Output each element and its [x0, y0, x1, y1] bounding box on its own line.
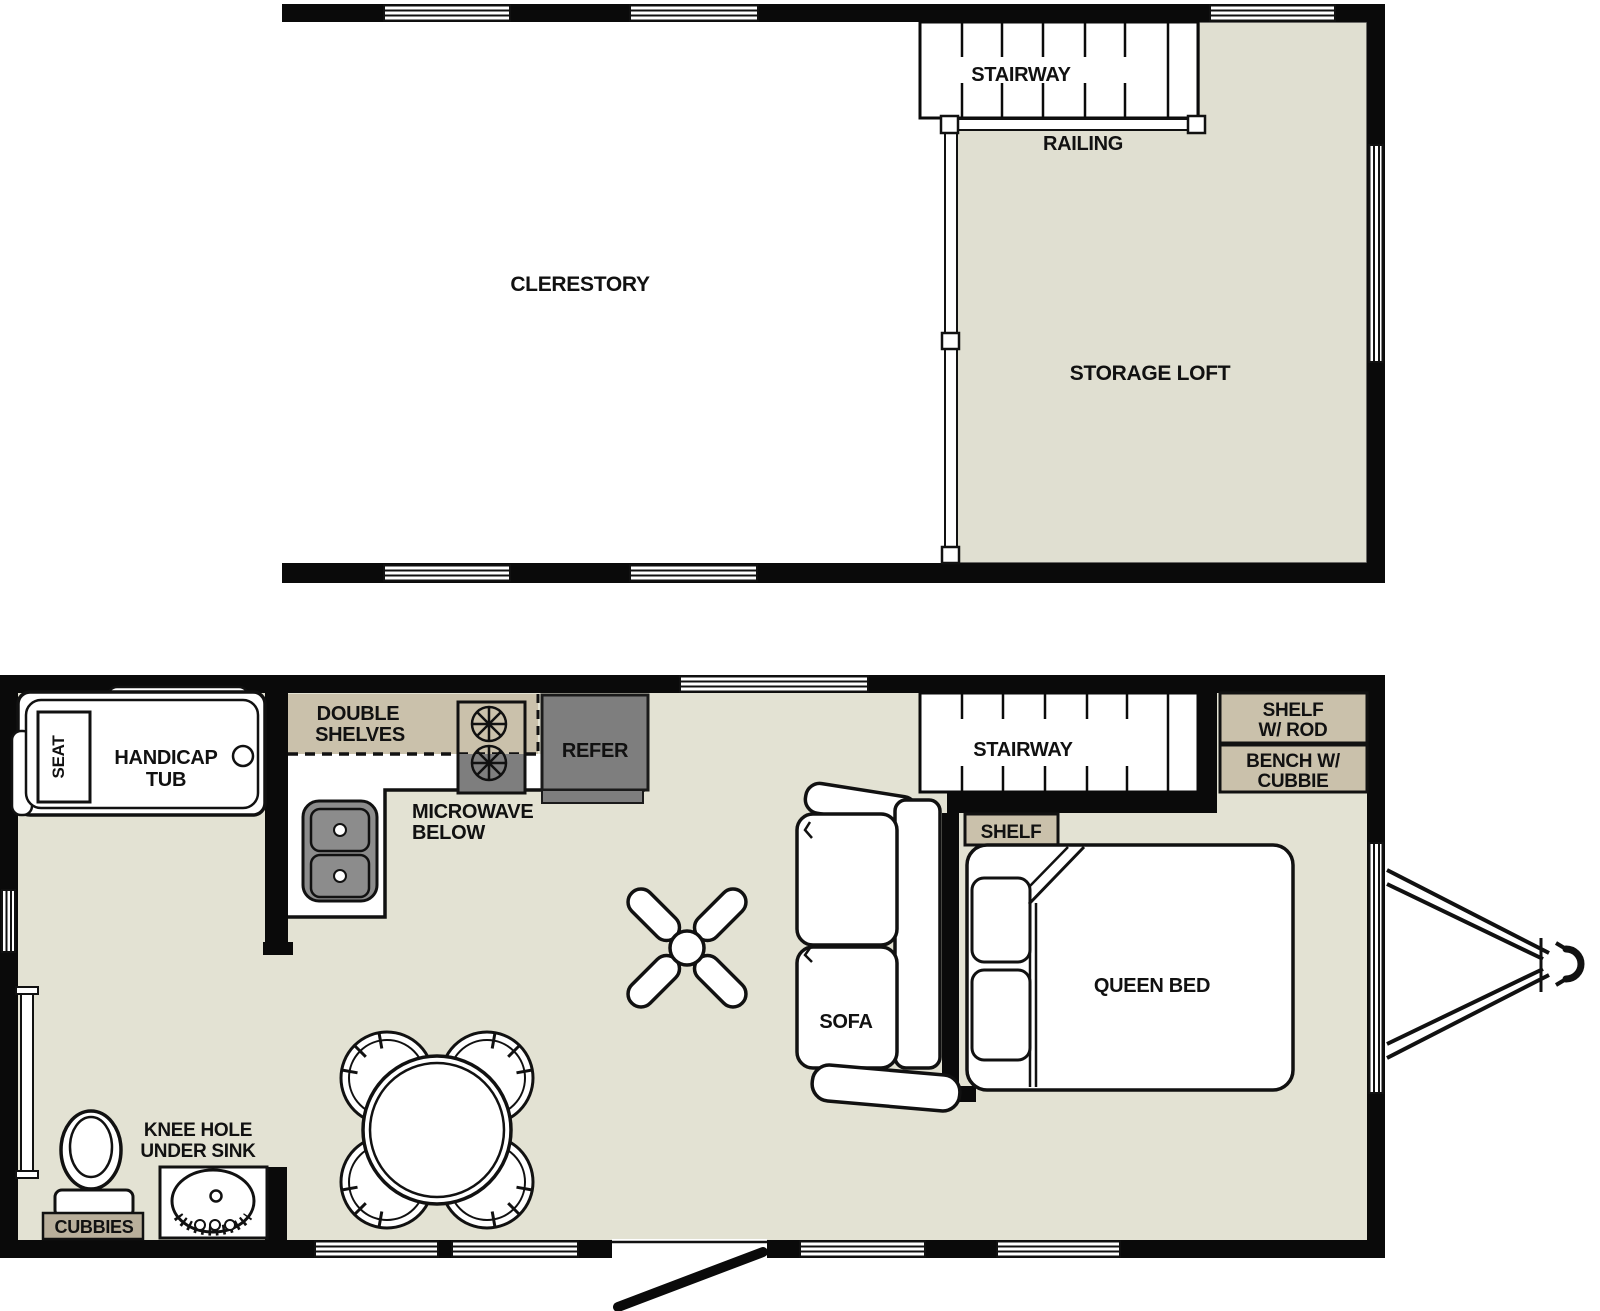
shelf-w-rod-label-2: W/ ROD: [1259, 720, 1328, 741]
main-window-right: [1370, 843, 1383, 1093]
burner: [472, 707, 506, 741]
tub-label-1: HANDICAP: [114, 747, 217, 769]
sofa-cushion-1: [797, 814, 897, 945]
cubbies-label: CUBBIES: [55, 1217, 134, 1237]
sofa-backrest: [895, 800, 940, 1068]
main-window-bottom-3: [800, 1242, 925, 1257]
upper-window-bottom-1: [384, 566, 510, 581]
upper-stairway-label: STAIRWAY: [971, 64, 1071, 86]
pillow: [972, 878, 1030, 962]
seat-label: SEAT: [49, 735, 68, 779]
pillow: [972, 970, 1030, 1060]
cubbies: CUBBIES: [43, 1213, 143, 1239]
main-level: SEAT HANDICAP TUB CUBBIES KNEE: [0, 675, 1581, 1307]
bed-shelf: SHELF: [965, 814, 1058, 845]
floorplan-page: STAIRWAY RAILING CLERESTORY STORAGE LOFT: [0, 0, 1600, 1311]
bed-shelf-label: SHELF: [981, 822, 1042, 843]
main-window-left: [2, 890, 15, 952]
bath-wall-tab: [263, 942, 293, 955]
main-window-bottom-4: [997, 1242, 1120, 1257]
railing-post: [942, 333, 959, 349]
upper-window-top-3: [1210, 6, 1335, 21]
burner: [472, 746, 506, 780]
upper-window-top-1: [384, 6, 510, 21]
bench-label-1: BENCH W/: [1246, 751, 1341, 772]
clerestory-label: CLERESTORY: [510, 273, 650, 296]
trailer-tongue: [1387, 870, 1581, 1058]
upper-window-bottom-2: [630, 566, 757, 581]
bathroom-sink: [160, 1167, 267, 1238]
refer-label: REFER: [562, 740, 629, 762]
bath-wall-upper: [265, 693, 288, 942]
entry-door: [612, 1239, 767, 1307]
hitch-coupler: [1566, 949, 1581, 979]
bench-w-cubbie: BENCH W/ CUBBIE: [1220, 745, 1367, 792]
double-shelves-label-2: SHELVES: [315, 724, 405, 746]
main-stairway-label: STAIRWAY: [973, 739, 1073, 761]
microwave-label-2: BELOW: [412, 822, 485, 844]
upper-level: STAIRWAY RAILING CLERESTORY STORAGE LOFT: [282, 4, 1385, 583]
refrigerator: REFER: [542, 695, 648, 803]
main-window-bottom-2: [452, 1242, 578, 1257]
sofa: SOFA: [797, 781, 961, 1112]
double-shelves-label-1: DOUBLE: [317, 703, 400, 725]
knee-hole-label-1: KNEE HOLE: [144, 1120, 252, 1141]
main-window-top: [680, 677, 868, 692]
bedroom-wall: [942, 813, 959, 1090]
microwave-label-1: MICROWAVE: [412, 801, 533, 823]
dinette-table-inner: [370, 1063, 504, 1197]
sofa-label: SOFA: [819, 1011, 872, 1033]
tub-label-2: TUB: [146, 769, 186, 791]
door-leaf: [618, 1252, 763, 1307]
main-stairway: STAIRWAY: [920, 693, 1198, 792]
storage-loft-label: STORAGE LOFT: [1070, 362, 1231, 385]
railing-post: [941, 116, 958, 133]
shelf-w-rod-label-1: SHELF: [1263, 700, 1324, 721]
floorplan-canvas: STAIRWAY RAILING CLERESTORY STORAGE LOFT: [0, 0, 1600, 1311]
shelf-w-rod: SHELF W/ ROD: [1220, 693, 1367, 743]
bench-label-2: CUBBIE: [1257, 771, 1328, 792]
handicap-tub: SEAT HANDICAP TUB: [12, 687, 265, 815]
upper-stairway: STAIRWAY: [920, 22, 1198, 118]
upper-window-right: [1370, 145, 1383, 362]
dinette: [341, 1032, 533, 1228]
kitchen-sink: [303, 801, 377, 901]
tub-drain: [233, 746, 253, 766]
understair-wall: [947, 792, 1217, 813]
upper-window-top-2: [630, 6, 758, 21]
sofa-cushion-2: [797, 947, 897, 1068]
railing-post: [942, 547, 959, 563]
railing-label: RAILING: [1043, 133, 1123, 155]
queen-bed-label: QUEEN BED: [1094, 975, 1210, 997]
railing-post: [1188, 116, 1205, 133]
queen-bed: QUEEN BED: [967, 845, 1293, 1090]
sink-drain: [211, 1191, 222, 1202]
knee-hole-label-2: UNDER SINK: [140, 1141, 256, 1162]
main-window-bottom-1: [315, 1242, 438, 1257]
